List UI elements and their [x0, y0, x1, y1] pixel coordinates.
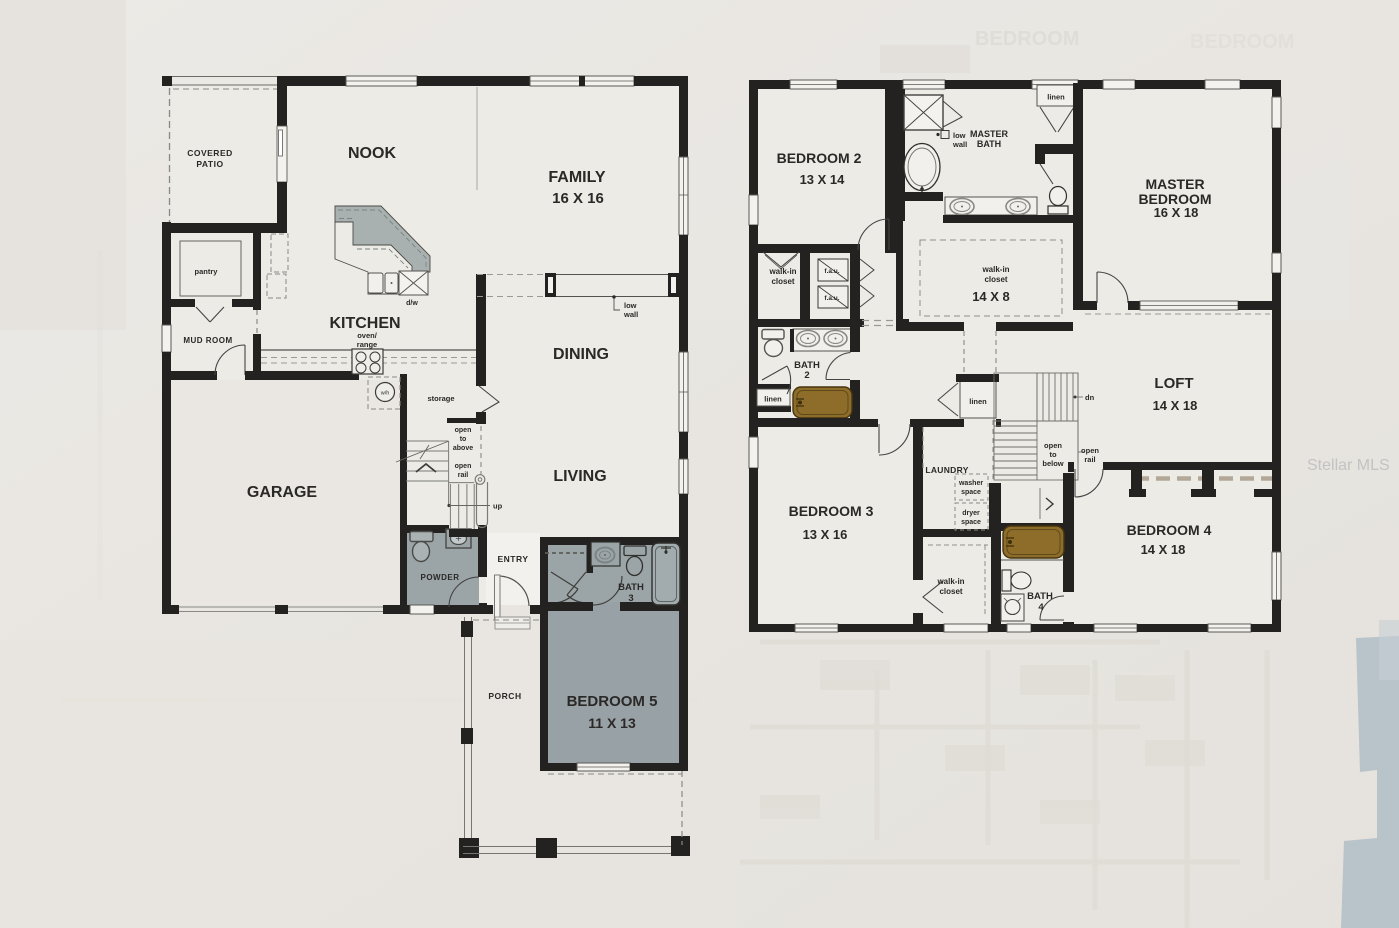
svg-text:to: to [1049, 450, 1056, 459]
svg-text:d/w: d/w [406, 300, 418, 307]
svg-text:KITCHEN: KITCHEN [329, 315, 400, 332]
svg-text:FAMILY: FAMILY [548, 169, 606, 186]
svg-text:to: to [460, 436, 467, 443]
svg-text:washer: washer [958, 480, 983, 487]
svg-text:oven/: oven/ [357, 331, 378, 340]
svg-text:BEDROOM 5: BEDROOM 5 [567, 693, 658, 710]
svg-text:PORCH: PORCH [488, 691, 521, 701]
svg-text:NOOK: NOOK [348, 145, 396, 162]
svg-text:storage: storage [427, 394, 454, 403]
svg-text:open: open [455, 427, 472, 434]
svg-text:space: space [961, 489, 981, 496]
svg-text:LOFT: LOFT [1154, 375, 1193, 392]
svg-text:13 X 16: 13 X 16 [803, 527, 848, 542]
svg-text:range: range [357, 340, 377, 349]
svg-text:up: up [493, 502, 503, 511]
svg-text:low: low [624, 301, 637, 310]
svg-text:MASTER: MASTER [970, 129, 1009, 139]
svg-text:11 X 13: 11 X 13 [588, 715, 636, 731]
svg-text:wall: wall [952, 140, 967, 149]
svg-text:f.a.u.: f.a.u. [824, 295, 839, 302]
svg-text:walk-in: walk-in [768, 267, 796, 276]
svg-text:MUD ROOM: MUD ROOM [183, 336, 232, 345]
svg-text:BEDROOM: BEDROOM [1190, 31, 1294, 53]
svg-text:space: space [961, 519, 981, 526]
svg-text:linen: linen [969, 397, 987, 406]
svg-text:MASTER: MASTER [1145, 176, 1204, 192]
svg-text:low: low [953, 131, 966, 140]
svg-text:w/h: w/h [380, 391, 390, 397]
svg-text:BATH: BATH [618, 582, 644, 593]
svg-text:below: below [1042, 459, 1063, 468]
svg-text:4: 4 [1038, 602, 1044, 613]
svg-text:13 X 14: 13 X 14 [800, 172, 846, 187]
svg-text:dn: dn [1085, 393, 1095, 402]
svg-text:14 X 18: 14 X 18 [1153, 398, 1198, 413]
svg-text:linen: linen [764, 395, 782, 404]
svg-text:BEDROOM 3: BEDROOM 3 [789, 503, 874, 519]
svg-text:wall: wall [623, 310, 638, 319]
svg-text:DINING: DINING [553, 346, 609, 363]
svg-text:14 X 18: 14 X 18 [1141, 542, 1186, 557]
svg-text:Stellar MLS: Stellar MLS [1307, 457, 1390, 474]
svg-text:linen: linen [1047, 93, 1065, 102]
svg-text:open: open [1081, 446, 1099, 455]
svg-text:16 X 18: 16 X 18 [1154, 205, 1199, 220]
svg-text:pantry: pantry [195, 267, 219, 276]
svg-text:closet: closet [939, 587, 962, 596]
svg-text:3: 3 [628, 593, 633, 604]
svg-text:dryer: dryer [962, 510, 980, 517]
svg-text:LIVING: LIVING [553, 468, 606, 485]
svg-text:closet: closet [771, 277, 794, 286]
svg-text:walk-in: walk-in [936, 577, 964, 586]
svg-text:walk-in: walk-in [981, 265, 1009, 274]
svg-text:above: above [453, 445, 473, 452]
svg-text:GARAGE: GARAGE [247, 484, 318, 501]
svg-text:POWDER: POWDER [421, 573, 460, 582]
svg-text:open: open [1044, 441, 1062, 450]
svg-text:open: open [455, 463, 472, 470]
svg-text:rail: rail [458, 472, 469, 479]
svg-text:closet: closet [984, 275, 1007, 284]
svg-text:BEDROOM 2: BEDROOM 2 [777, 150, 862, 166]
svg-text:LAUNDRY: LAUNDRY [925, 465, 968, 475]
svg-text:rail: rail [1084, 455, 1095, 464]
svg-text:PATIO: PATIO [196, 159, 223, 169]
svg-text:COVERED: COVERED [187, 148, 233, 158]
svg-text:BEDROOM: BEDROOM [975, 28, 1079, 50]
svg-text:16 X 16: 16 X 16 [552, 190, 604, 207]
svg-text:2: 2 [804, 370, 809, 381]
svg-text:ENTRY: ENTRY [498, 554, 529, 564]
svg-text:BEDROOM 4: BEDROOM 4 [1127, 522, 1212, 538]
svg-text:14 X 8: 14 X 8 [972, 289, 1010, 304]
svg-text:BATH: BATH [977, 139, 1001, 149]
svg-text:BATH: BATH [1027, 591, 1053, 602]
svg-text:f.a.u.: f.a.u. [824, 268, 839, 275]
